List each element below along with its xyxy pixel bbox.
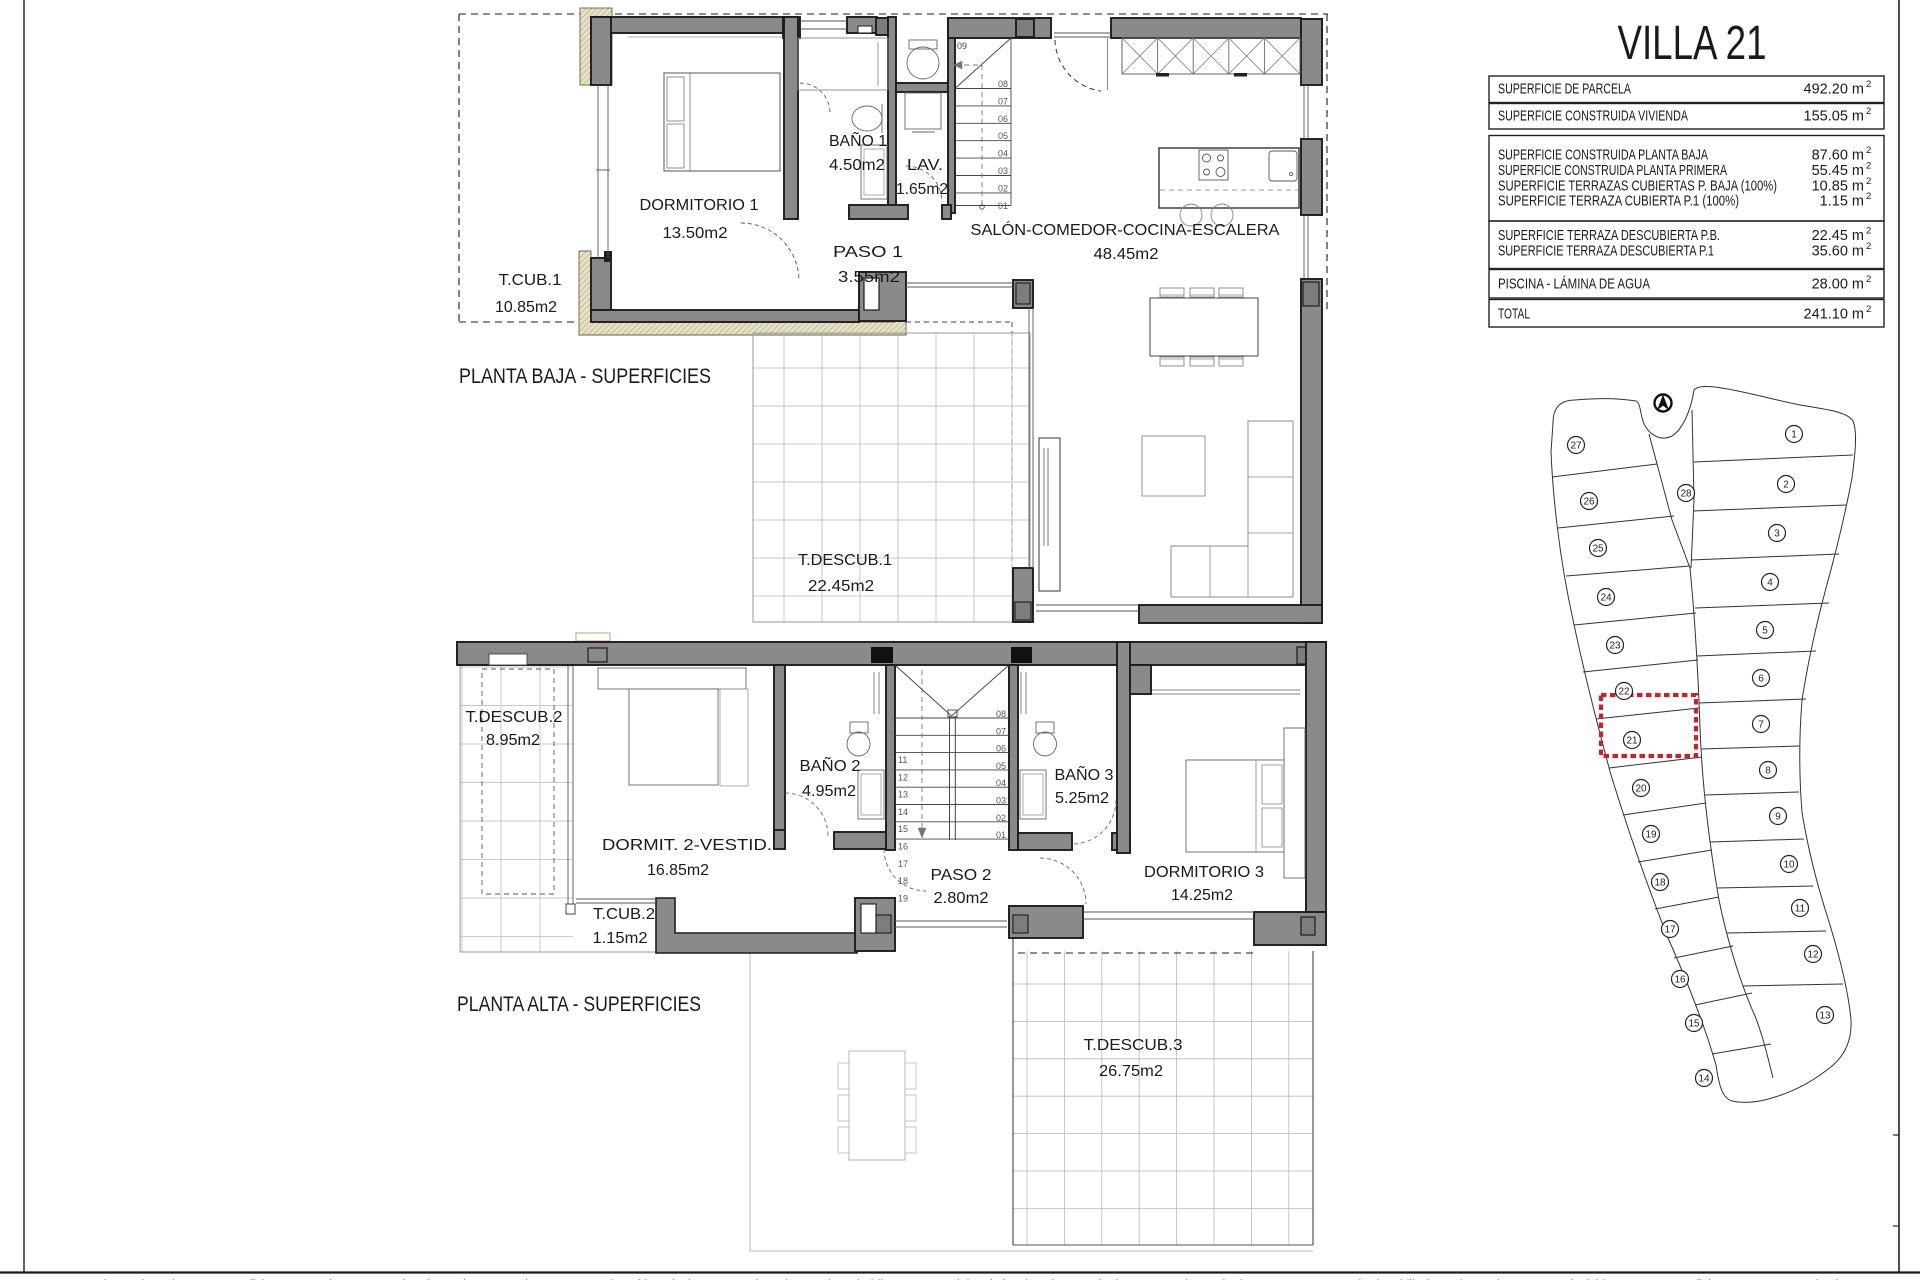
svg-text:11: 11 — [898, 755, 907, 765]
svg-text:48.45m2: 48.45m2 — [1094, 246, 1159, 263]
svg-text:22: 22 — [1618, 687, 1630, 698]
svg-text:5: 5 — [1762, 626, 1768, 637]
svg-text:04: 04 — [998, 149, 1008, 159]
svg-text:LAV.: LAV. — [907, 157, 943, 174]
svg-text:241.10 m: 241.10 m — [1804, 307, 1864, 323]
svg-text:4: 4 — [1767, 578, 1773, 589]
svg-text:87.60 m: 87.60 m — [1812, 148, 1864, 164]
svg-text:2: 2 — [1866, 176, 1871, 187]
svg-text:25: 25 — [1592, 544, 1604, 555]
svg-text:T.DESCUB.2: T.DESCUB.2 — [466, 709, 563, 726]
svg-text:2: 2 — [1866, 106, 1871, 117]
svg-text:02: 02 — [996, 813, 1006, 823]
svg-text:4.95m2: 4.95m2 — [802, 783, 856, 800]
svg-text:SUPERFICIE TERRAZA CUBIERTA P.: SUPERFICIE TERRAZA CUBIERTA P.1 (100%) — [1498, 194, 1739, 210]
svg-text:05: 05 — [996, 761, 1006, 771]
svg-text:8: 8 — [1765, 766, 1771, 777]
svg-text:T.CUB.1: T.CUB.1 — [499, 272, 562, 289]
svg-text:BAÑO 3: BAÑO 3 — [1055, 764, 1114, 784]
svg-text:SUPERFICIE DE PARCELA: SUPERFICIE DE PARCELA — [1498, 82, 1631, 98]
svg-text:27: 27 — [1570, 441, 1582, 452]
svg-text:14: 14 — [1698, 1074, 1710, 1085]
svg-text:T.DESCUB.3: T.DESCUB.3 — [1084, 1037, 1183, 1054]
svg-text:15: 15 — [1688, 1019, 1700, 1030]
svg-text:28: 28 — [1680, 489, 1692, 500]
svg-text:17: 17 — [898, 859, 908, 869]
svg-text:02: 02 — [998, 183, 1008, 193]
svg-text:2: 2 — [1866, 226, 1871, 237]
svg-text:05: 05 — [998, 131, 1008, 141]
svg-text:SUPERFICIE TERRAZAS CUBIERTAS: SUPERFICIE TERRAZAS CUBIERTAS P. BAJA (1… — [1498, 179, 1777, 195]
svg-text:492.20 m: 492.20 m — [1804, 82, 1864, 98]
svg-text:PISCINA - LÁMINA DE AGUA: PISCINA - LÁMINA DE AGUA — [1498, 276, 1650, 293]
svg-text:19: 19 — [898, 893, 908, 903]
svg-text:3: 3 — [1774, 529, 1780, 540]
svg-text:09: 09 — [957, 41, 967, 51]
svg-text:DORMIT. 2-VESTID.: DORMIT. 2-VESTID. — [602, 837, 772, 854]
svg-text:26.75m2: 26.75m2 — [1099, 1063, 1163, 1080]
svg-text:12: 12 — [1807, 950, 1819, 961]
svg-text:8.95m2: 8.95m2 — [486, 732, 540, 749]
svg-text:BAÑO 2: BAÑO 2 — [800, 755, 861, 775]
svg-text:03: 03 — [998, 166, 1008, 176]
svg-text:7: 7 — [1758, 720, 1764, 731]
svg-text:01: 01 — [998, 201, 1008, 211]
svg-text:10.85m2: 10.85m2 — [495, 299, 557, 316]
svg-text:13: 13 — [898, 790, 908, 800]
svg-text:2: 2 — [1866, 145, 1871, 156]
svg-text:10.85 m: 10.85 m — [1812, 179, 1864, 195]
svg-text:22.45m2: 22.45m2 — [808, 578, 874, 595]
svg-text:11: 11 — [1795, 904, 1806, 915]
svg-text:15: 15 — [898, 824, 908, 834]
svg-text:2: 2 — [1866, 79, 1871, 90]
svg-text:SUPERFICIE TERRAZA DESCUBIERTA: SUPERFICIE TERRAZA DESCUBIERTA P.B. — [1498, 228, 1720, 244]
svg-text:4.50m2: 4.50m2 — [829, 157, 885, 174]
svg-text:1.15 m: 1.15 m — [1820, 194, 1864, 210]
svg-text:5.25m2: 5.25m2 — [1055, 790, 1109, 807]
svg-text:DORMITORIO 1: DORMITORIO 1 — [640, 197, 759, 214]
svg-text:16.85m2: 16.85m2 — [647, 862, 709, 879]
svg-text:3.55m2: 3.55m2 — [838, 269, 900, 286]
svg-text:1.65m2: 1.65m2 — [896, 181, 948, 198]
svg-text:PASO 2: PASO 2 — [931, 867, 992, 884]
svg-text:06: 06 — [998, 114, 1008, 124]
svg-text:12: 12 — [898, 772, 908, 782]
svg-text:PLANTA BAJA - SUPERFICIES: PLANTA BAJA - SUPERFICIES — [459, 364, 711, 388]
svg-text:21: 21 — [1626, 736, 1638, 747]
svg-text:07: 07 — [996, 726, 1006, 736]
svg-text:14.25m2: 14.25m2 — [1171, 887, 1233, 904]
svg-text:17: 17 — [1664, 925, 1676, 936]
svg-text:2: 2 — [1866, 191, 1871, 202]
svg-text:VILLA 21: VILLA 21 — [1618, 17, 1767, 70]
svg-text:06: 06 — [996, 744, 1006, 754]
svg-text:16: 16 — [898, 842, 908, 852]
svg-text:16: 16 — [1674, 975, 1686, 986]
svg-text:TOTAL: TOTAL — [1498, 307, 1530, 323]
svg-text:2: 2 — [1866, 241, 1871, 252]
svg-text:13: 13 — [1819, 1011, 1831, 1022]
svg-text:35.60 m: 35.60 m — [1812, 244, 1864, 260]
svg-text:08: 08 — [996, 709, 1006, 719]
svg-text:1: 1 — [1791, 430, 1797, 441]
svg-text:10: 10 — [1783, 860, 1795, 871]
svg-text:2: 2 — [1783, 480, 1789, 491]
svg-text:20: 20 — [1635, 784, 1647, 795]
svg-text:SALÓN-COMEDOR-COCINA-ESCALERA: SALÓN-COMEDOR-COCINA-ESCALERA — [971, 220, 1280, 239]
svg-text:6: 6 — [1758, 674, 1764, 685]
svg-text:19: 19 — [1645, 830, 1657, 841]
svg-text:26: 26 — [1583, 497, 1595, 508]
svg-text:55.45 m: 55.45 m — [1812, 163, 1864, 179]
svg-text:01: 01 — [996, 830, 1006, 840]
svg-text:SUPERFICIE TERRAZA DESCUBIERTA: SUPERFICIE TERRAZA DESCUBIERTA P.1 — [1498, 244, 1714, 260]
svg-text:2: 2 — [1866, 304, 1871, 315]
svg-text:2: 2 — [1866, 161, 1871, 172]
svg-text:SUPERFICIE CONSTRUIDA PLANTA P: SUPERFICIE CONSTRUIDA PLANTA PRIMERA — [1498, 163, 1727, 179]
svg-text:1.15m2: 1.15m2 — [593, 930, 648, 947]
svg-text:9: 9 — [1775, 812, 1781, 823]
svg-text:28.00 m: 28.00 m — [1812, 277, 1864, 293]
svg-text:23: 23 — [1609, 641, 1621, 652]
svg-text:T.CUB.2: T.CUB.2 — [593, 906, 655, 923]
svg-text:T.DESCUB.1: T.DESCUB.1 — [798, 552, 892, 569]
svg-text:08: 08 — [998, 79, 1008, 89]
svg-text:SUPERFICIE CONSTRUIDA VIVIENDA: SUPERFICIE CONSTRUIDA VIVIENDA — [1498, 109, 1688, 125]
svg-text:22.45 m: 22.45 m — [1812, 228, 1864, 244]
svg-text:07: 07 — [998, 96, 1008, 106]
svg-text:2: 2 — [1866, 274, 1871, 285]
svg-text:155.05 m: 155.05 m — [1804, 109, 1864, 125]
svg-text:SUPERFICIE CONSTRUIDA PLANTA B: SUPERFICIE CONSTRUIDA PLANTA BAJA — [1498, 148, 1708, 164]
svg-text:03: 03 — [996, 796, 1006, 806]
svg-text:DORMITORIO 3: DORMITORIO 3 — [1144, 864, 1264, 881]
svg-text:PLANTA ALTA - SUPERFICIES: PLANTA ALTA - SUPERFICIES — [457, 992, 701, 1016]
svg-text:24: 24 — [1600, 593, 1612, 604]
svg-text:2.80m2: 2.80m2 — [934, 890, 989, 907]
svg-text:BAÑO 1: BAÑO 1 — [829, 130, 887, 150]
svg-text:18: 18 — [1654, 878, 1666, 889]
svg-text:14: 14 — [898, 807, 908, 817]
svg-text:04: 04 — [996, 778, 1006, 788]
svg-text:13.50m2: 13.50m2 — [663, 225, 728, 242]
svg-text:PASO 1: PASO 1 — [833, 244, 903, 261]
